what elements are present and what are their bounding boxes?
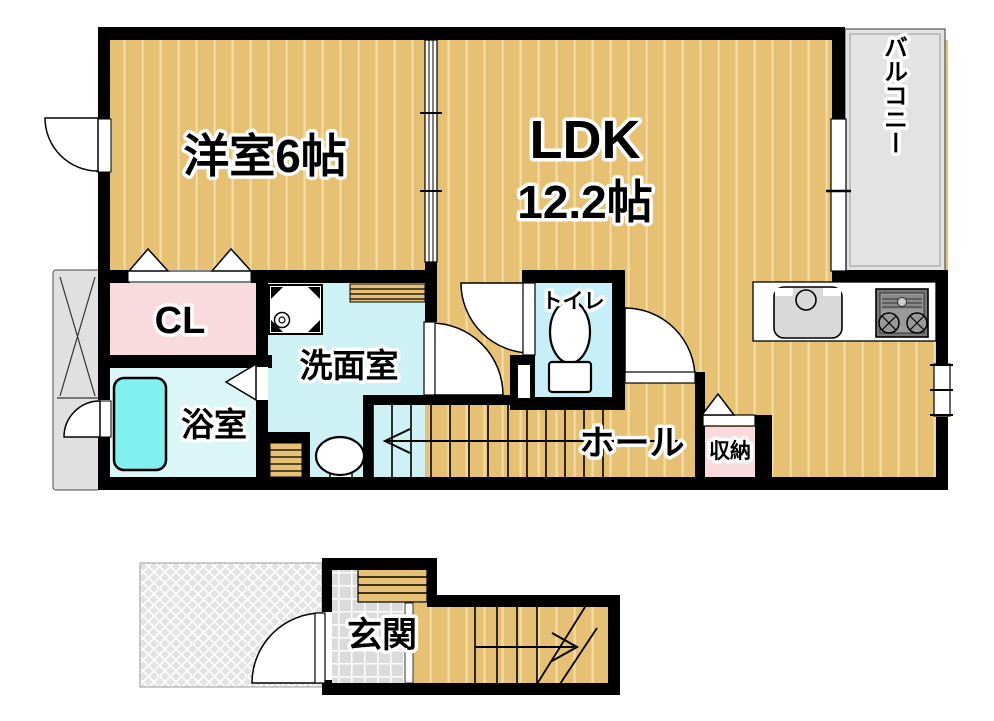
entrance-label: 玄関: [347, 616, 417, 655]
wall-segment: [936, 417, 948, 477]
wall-segment: [522, 397, 625, 410]
wall-niche: [518, 365, 530, 398]
closet-label: CL: [155, 300, 206, 342]
wall-segment: [262, 443, 270, 477]
ldk-label: LDK: [530, 110, 641, 170]
washing-machine-pan-icon: [269, 285, 322, 334]
wall-segment: [322, 558, 435, 570]
entrance-step-strip: [358, 568, 427, 602]
toilet-label: トイレ: [542, 290, 605, 313]
floor-plan-drawing: 洋室6帖 LDK 12.2帖 バルコニー CL 洗面室 浴室 トイレ ホール 収…: [0, 0, 994, 721]
wall-segment: [251, 270, 437, 283]
hall-label: ホール: [579, 424, 684, 463]
wall-segment: [755, 415, 772, 477]
wall-segment: [425, 278, 437, 322]
storage-label: 収納: [709, 439, 751, 463]
balcony-label: バルコニー: [880, 35, 907, 155]
wall-segment: [832, 270, 948, 282]
wall-segment: [363, 395, 373, 490]
wall-segment: [322, 683, 620, 695]
wall-segment: [98, 27, 845, 40]
washroom-top-shelf: [350, 284, 425, 302]
bathtub-icon: [114, 378, 166, 470]
wall-segment: [522, 270, 625, 283]
void-outline: [53, 270, 100, 490]
kitchen-window: [930, 364, 953, 416]
wall-segment: [363, 395, 512, 405]
toilet-icon: [549, 301, 591, 392]
wall-segment: [98, 40, 110, 120]
wall-segment: [612, 270, 625, 410]
wall-segment: [302, 443, 310, 477]
wall-segment: [98, 355, 272, 368]
wall-segment: [427, 595, 620, 607]
floor-plan-canvas: 洋室6帖 LDK 12.2帖 バルコニー CL 洗面室 浴室 トイレ ホール 収…: [0, 0, 994, 721]
washroom-label: 洗面室: [300, 347, 399, 384]
wall-segment: [98, 270, 130, 283]
stove-icon: [876, 289, 928, 337]
wall-segment: [322, 558, 332, 612]
exterior-void-area: [53, 270, 100, 490]
wall-segment: [832, 27, 845, 120]
wall-segment: [608, 595, 620, 695]
wall-segment: [256, 283, 268, 355]
kitchen-sink-icon: [774, 287, 842, 338]
washroom-corner-shelf: [270, 443, 302, 477]
wall-segment: [262, 432, 310, 443]
bathroom-label: 浴室: [181, 406, 247, 443]
wall-segment: [936, 282, 948, 365]
wall-segment: [98, 477, 948, 490]
western-room-label: 洋室6帖: [183, 130, 347, 182]
ldk-size-label: 12.2帖: [517, 176, 653, 228]
